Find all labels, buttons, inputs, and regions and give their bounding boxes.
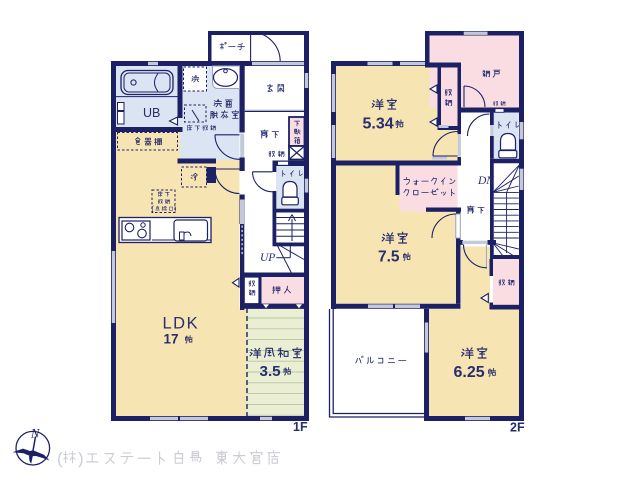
svg-text:1F: 1F — [293, 420, 308, 434]
svg-text:UB: UB — [143, 106, 160, 120]
svg-text:17: 17 — [164, 332, 179, 347]
svg-text:UP: UP — [260, 252, 275, 264]
svg-text:7.5: 7.5 — [378, 249, 400, 266]
svg-text:): ) — [78, 449, 84, 468]
svg-text:DN: DN — [477, 175, 495, 187]
svg-text:): ) — [174, 206, 176, 213]
svg-text:LDK: LDK — [163, 315, 200, 333]
svg-text:(: ( — [57, 449, 63, 468]
svg-text:5.34: 5.34 — [363, 116, 394, 133]
svg-text:2F: 2F — [510, 421, 525, 435]
svg-text:6.25: 6.25 — [454, 364, 485, 381]
svg-text:3.5: 3.5 — [260, 363, 282, 380]
